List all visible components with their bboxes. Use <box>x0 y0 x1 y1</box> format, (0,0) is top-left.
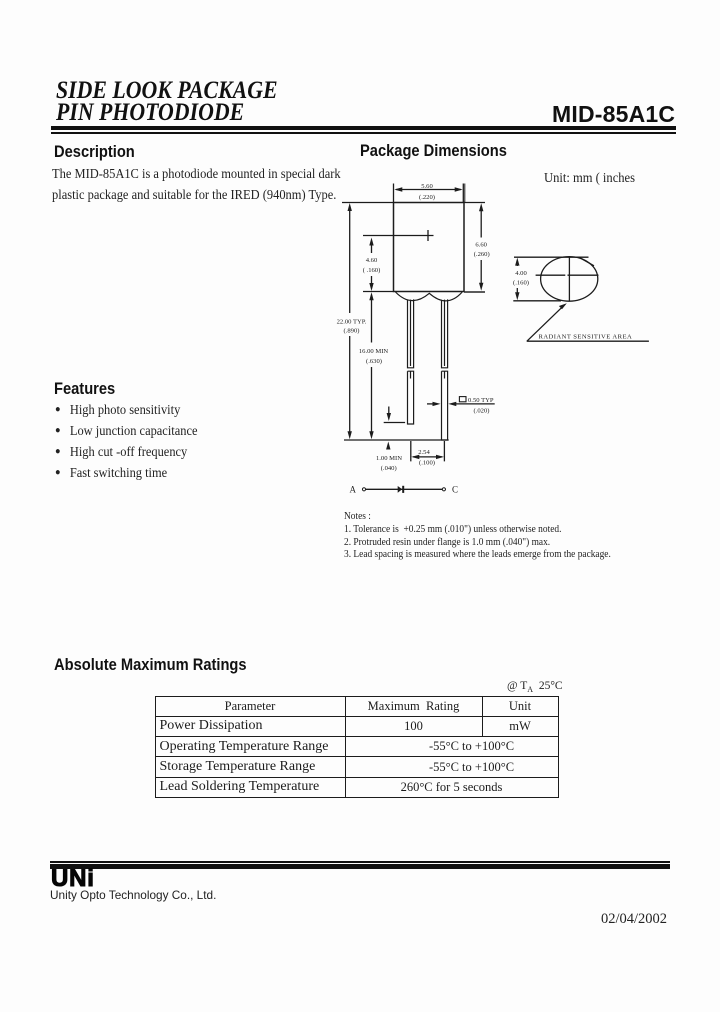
svg-text:6.60: 6.60 <box>475 242 487 249</box>
svg-text:( .160): ( .160) <box>363 267 381 274</box>
svg-text:RADIANT SENSITIVE AREA: RADIANT SENSITIVE AREA <box>539 334 633 341</box>
svg-text:(.890): (.890) <box>344 328 360 335</box>
svg-text:5.60: 5.60 <box>421 183 433 190</box>
svg-text:(.220): (.220) <box>419 194 435 201</box>
svg-text:(.630): (.630) <box>366 358 382 365</box>
svg-text:A: A <box>350 485 357 495</box>
svg-text:1.00 MIN: 1.00 MIN <box>376 455 402 462</box>
svg-text:22.00 TYP.: 22.00 TYP. <box>337 319 367 326</box>
svg-text:(.260): (.260) <box>474 251 490 258</box>
svg-text:2.54: 2.54 <box>418 449 430 456</box>
svg-text:(.040): (.040) <box>381 465 397 472</box>
svg-text:(.100): (.100) <box>419 460 435 467</box>
svg-text:0.50 TYP: 0.50 TYP <box>468 397 494 404</box>
svg-text:16.00 MIN: 16.00 MIN <box>359 348 389 355</box>
svg-text:4.00: 4.00 <box>515 270 527 277</box>
svg-text:C: C <box>452 485 458 495</box>
svg-text:(.020): (.020) <box>474 408 490 415</box>
svg-text:(.160): (.160) <box>513 280 529 287</box>
svg-text:4.60: 4.60 <box>366 257 378 264</box>
